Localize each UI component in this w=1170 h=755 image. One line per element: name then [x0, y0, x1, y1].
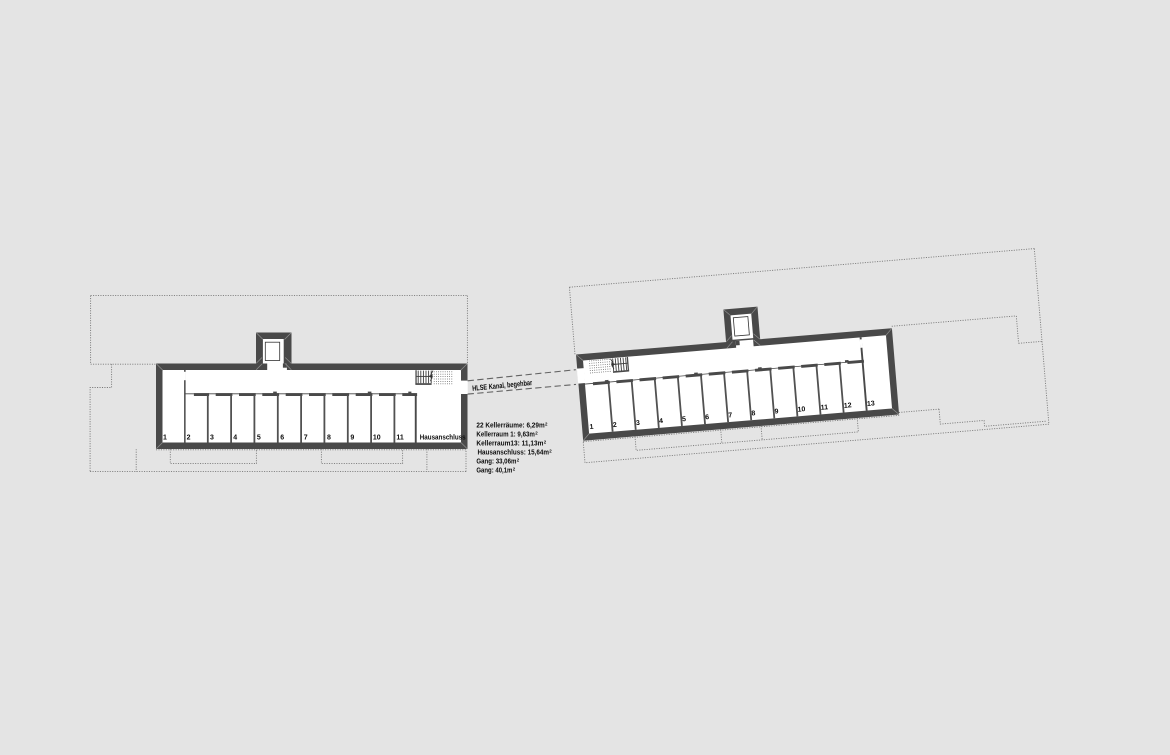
svg-text:Hausanschluss: 15,64m: Hausanschluss: 15,64m	[478, 450, 550, 457]
svg-text:11: 11	[821, 404, 829, 412]
svg-text:Hausanschluss: Hausanschluss	[420, 435, 466, 442]
svg-text:Kellerraum13: 11,13m: Kellerraum13: 11,13m	[476, 441, 543, 448]
svg-text:Gang: 33,06m: Gang: 33,06m	[476, 459, 516, 466]
svg-text:Gang: 40,1m: Gang: 40,1m	[476, 468, 512, 475]
svg-text:11: 11	[396, 435, 404, 442]
svg-text:6: 6	[280, 435, 284, 442]
svg-text:9: 9	[774, 408, 779, 415]
svg-text:7: 7	[304, 435, 308, 442]
svg-text:3: 3	[210, 435, 214, 442]
svg-text:12: 12	[844, 402, 852, 410]
svg-text:10: 10	[797, 406, 805, 414]
svg-text:8: 8	[751, 410, 756, 417]
svg-text:Kellerraum 1: 9,63m: Kellerraum 1: 9,63m	[476, 432, 535, 439]
svg-text:5: 5	[257, 435, 261, 442]
svg-text:9: 9	[350, 435, 354, 442]
svg-text:4: 4	[233, 435, 237, 442]
svg-text:3: 3	[636, 420, 641, 427]
svg-text:1: 1	[589, 424, 594, 431]
svg-text:2: 2	[187, 435, 191, 442]
svg-text:22 Kellerräume: 6,29m: 22 Kellerräume: 6,29m	[476, 423, 544, 430]
svg-text:6: 6	[705, 414, 710, 421]
svg-text:8: 8	[327, 435, 331, 442]
svg-text:1: 1	[163, 435, 167, 442]
svg-text:7: 7	[728, 412, 733, 419]
svg-text:10: 10	[373, 435, 381, 442]
svg-text:4: 4	[659, 418, 664, 425]
svg-text:5: 5	[682, 416, 687, 423]
svg-text:2: 2	[613, 422, 618, 429]
svg-text:13: 13	[867, 400, 875, 408]
